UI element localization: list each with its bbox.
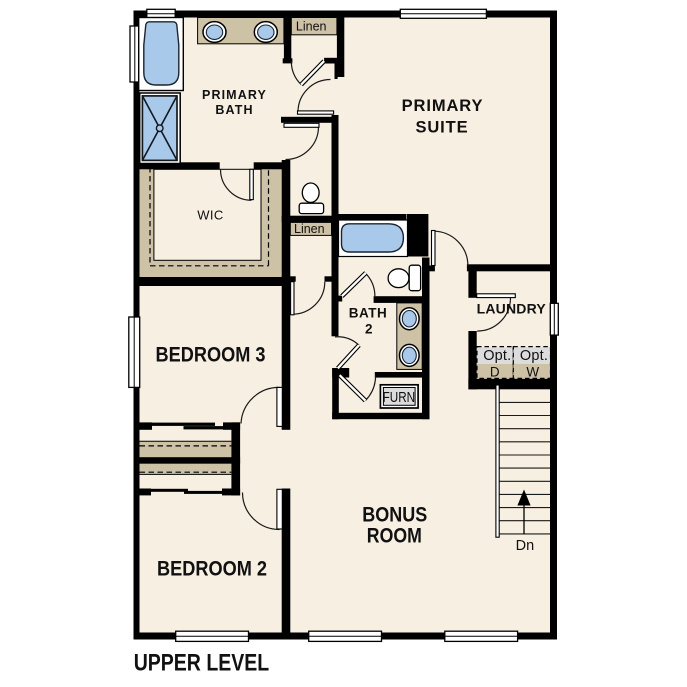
svg-text:BONUS: BONUS [362, 503, 427, 526]
svg-text:WIC: WIC [197, 208, 223, 223]
svg-text:BEDROOM 3: BEDROOM 3 [156, 344, 266, 367]
svg-text:2: 2 [365, 321, 373, 336]
svg-text:LAUNDRY: LAUNDRY [477, 301, 547, 317]
svg-text:Linen: Linen [294, 222, 325, 236]
svg-text:BATH: BATH [215, 103, 253, 117]
svg-text:SUITE: SUITE [415, 118, 468, 136]
svg-text:Opt.: Opt. [520, 348, 548, 364]
svg-text:PRIMARY: PRIMARY [402, 97, 484, 115]
svg-text:Opt.: Opt. [483, 348, 511, 364]
svg-text:D: D [490, 365, 500, 380]
svg-text:FURN: FURN [383, 389, 416, 406]
svg-text:ROOM: ROOM [367, 524, 422, 547]
svg-text:Dn: Dn [516, 538, 535, 554]
svg-text:PRIMARY: PRIMARY [202, 88, 267, 102]
svg-text:UPPER LEVEL: UPPER LEVEL [134, 649, 270, 676]
svg-text:Linen: Linen [296, 19, 327, 33]
svg-text:W: W [526, 365, 539, 380]
svg-text:BATH: BATH [349, 306, 388, 321]
svg-text:BEDROOM 2: BEDROOM 2 [157, 558, 267, 581]
